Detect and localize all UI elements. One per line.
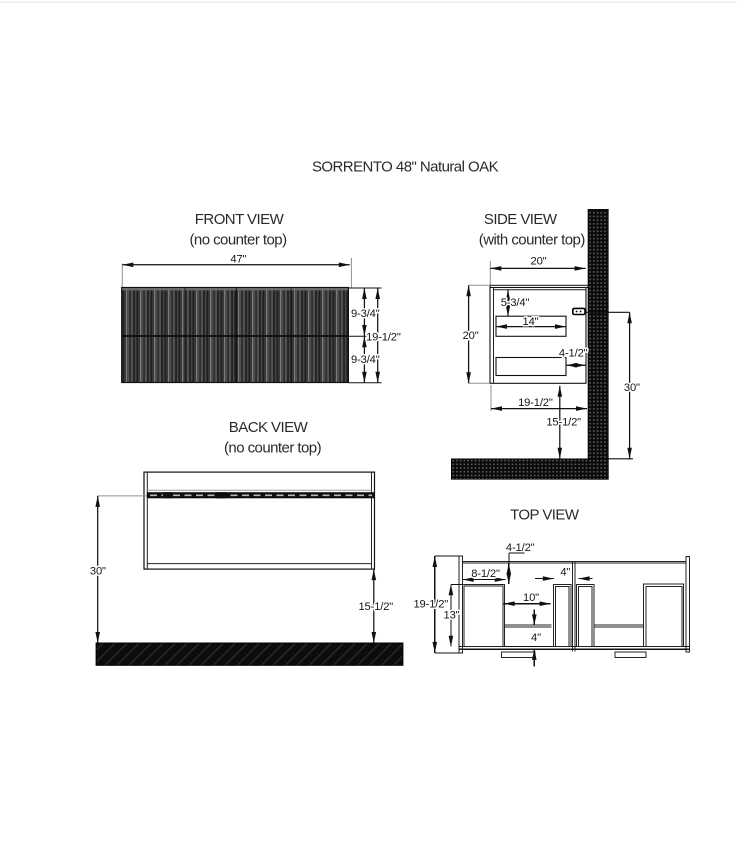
svg-text:4": 4" [531,632,541,644]
svg-text:10": 10" [523,592,539,604]
svg-text:19-1/2": 19-1/2" [518,397,553,409]
svg-text:14": 14" [523,316,539,328]
svg-text:(no counter top): (no counter top) [224,440,322,457]
svg-text:5-3/4": 5-3/4" [501,297,530,309]
svg-text:TOP VIEW: TOP VIEW [510,507,580,524]
svg-text:9-3/4": 9-3/4" [351,308,380,320]
svg-text:13": 13" [444,610,460,622]
svg-text:20": 20" [463,330,479,342]
svg-text:SIDE VIEW: SIDE VIEW [484,211,558,228]
svg-text:19-1/2": 19-1/2" [366,332,401,344]
svg-text:15-1/2": 15-1/2" [358,601,393,613]
svg-text:8-1/2": 8-1/2" [471,568,500,580]
svg-text:(with counter top): (with counter top) [479,231,586,248]
svg-text:4-1/2": 4-1/2" [559,347,588,359]
svg-text:BACK VIEW: BACK VIEW [229,419,309,436]
svg-text:30": 30" [624,382,640,394]
svg-text:4-1/2": 4-1/2" [506,542,535,554]
svg-text:FRONT VIEW: FRONT VIEW [195,211,285,228]
svg-text:20": 20" [531,256,547,268]
svg-text:47": 47" [230,254,246,266]
svg-text:4": 4" [560,567,570,579]
svg-text:(no counter top): (no counter top) [189,231,287,248]
svg-text:15-1/2": 15-1/2" [546,417,581,429]
svg-text:30": 30" [90,566,106,578]
svg-text:9-3/4": 9-3/4" [351,354,380,366]
svg-text:SORRENTO 48" Natural OAK: SORRENTO 48" Natural OAK [312,159,499,176]
